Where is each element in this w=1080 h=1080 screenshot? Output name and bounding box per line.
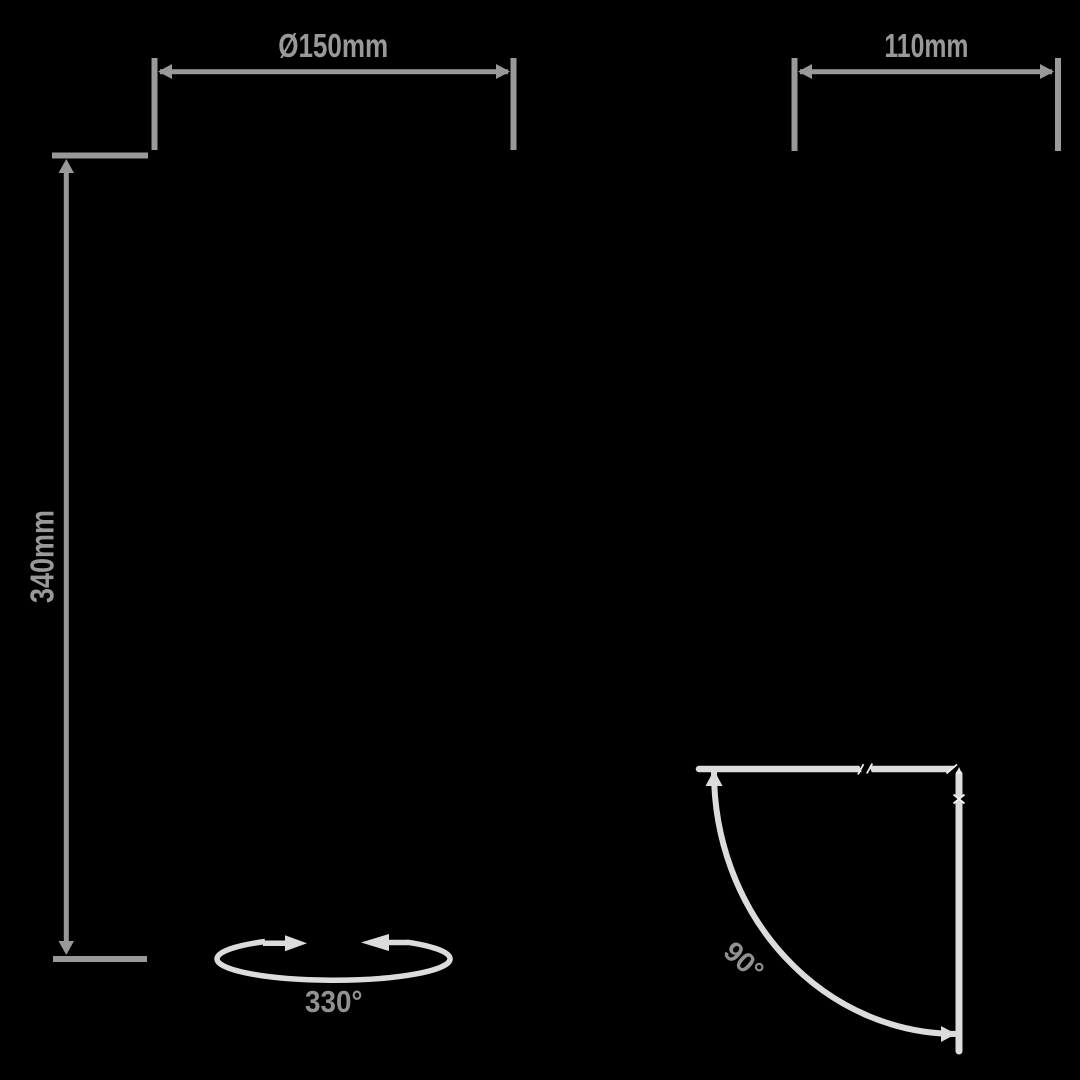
svg-text:340mm: 340mm	[24, 510, 61, 603]
svg-text:110mm: 110mm	[884, 27, 968, 64]
svg-text:Ø150mm: Ø150mm	[278, 27, 388, 64]
svg-text:330°: 330°	[305, 984, 363, 1019]
